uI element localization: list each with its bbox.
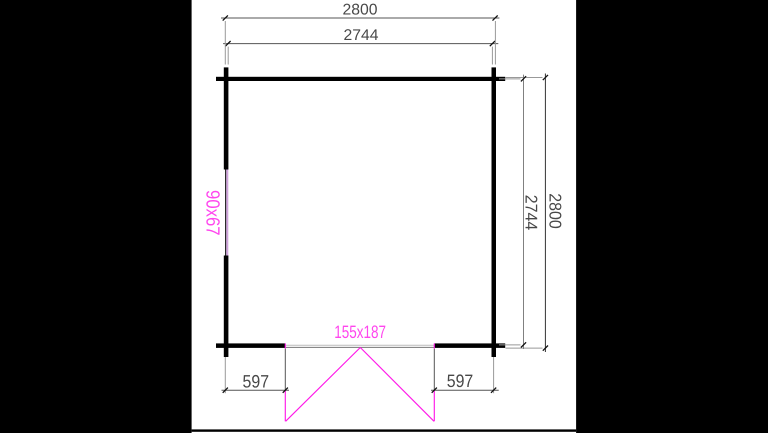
svg-text:2800: 2800 [343,1,378,18]
svg-text:597: 597 [243,371,270,391]
svg-text:2744: 2744 [522,195,541,231]
svg-text:155x187: 155x187 [334,322,386,342]
svg-text:2744: 2744 [344,27,379,44]
svg-text:90x67: 90x67 [202,190,223,236]
svg-text:597: 597 [447,371,474,391]
svg-text:2800: 2800 [546,193,565,229]
